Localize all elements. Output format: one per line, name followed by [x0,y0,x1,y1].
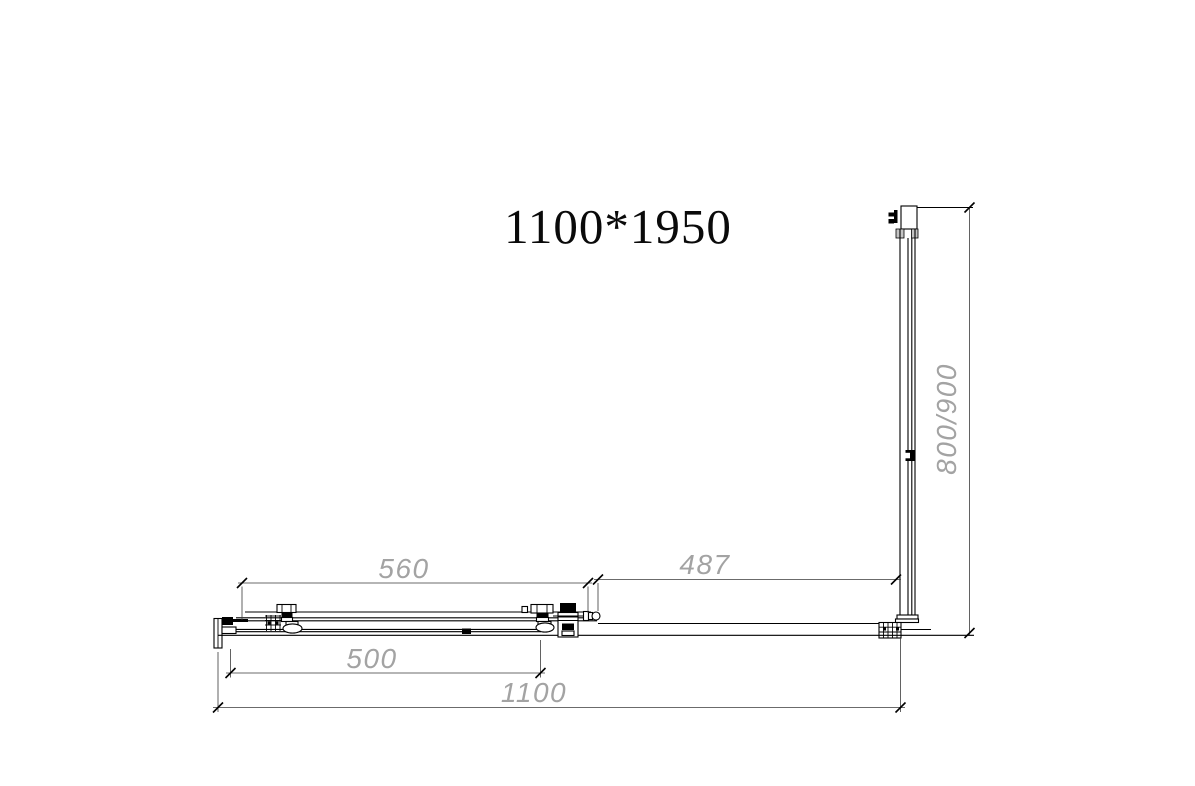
glass-clamp-notch [906,453,911,459]
dimension-label-560: 560 [378,553,429,584]
dimension-500: 500 [226,640,546,678]
dimensions: 560 487 500 1100 [213,203,975,713]
dimension-800-900: 800/900 [931,203,975,639]
door-roller-left [265,605,302,634]
drawing-sheet: 1100*1950 [0,0,1195,786]
technical-drawing-canvas: 1100*1950 [0,0,1195,786]
panel-base-bar-top [897,615,918,619]
dimension-label-1100: 1100 [501,677,567,708]
sliding-door-assembly [214,603,974,648]
dimension-1100: 1100 [213,638,906,713]
panel-junction-block [558,603,578,637]
drawing-title: 1100*1950 [504,199,732,254]
dimension-label-500: 500 [346,643,397,674]
wall-clip-screw-bottom [889,219,895,224]
wall-clip [894,210,898,223]
wall-profile-left [214,617,248,648]
dimension-label-800-900: 800/900 [931,363,962,475]
track-stopper [462,629,471,635]
wall-clip-screw-top [889,213,895,217]
dimension-label-487: 487 [679,549,730,580]
wall-profile-top [901,206,917,229]
dimension-487: 487 [593,549,901,611]
